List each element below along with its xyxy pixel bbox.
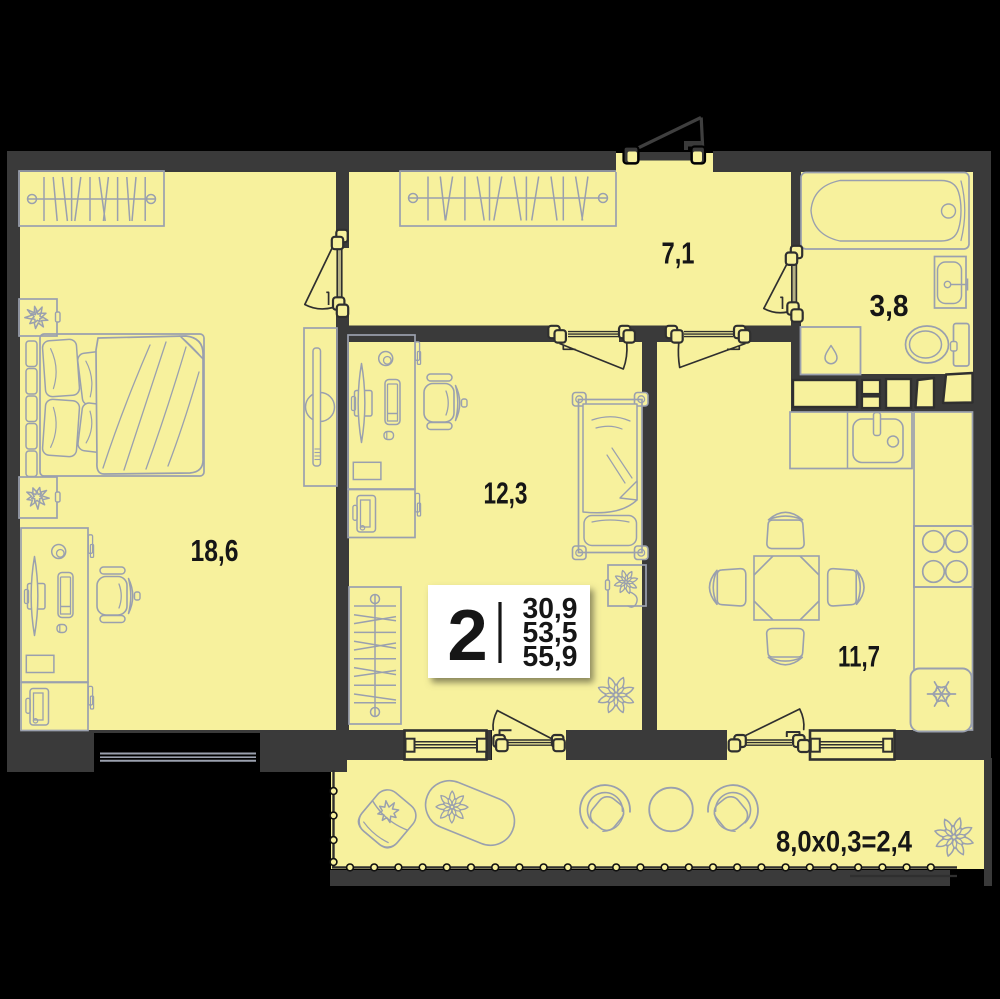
svg-text:8,0x0,3=2,4: 8,0x0,3=2,4 (776, 826, 912, 859)
svg-text:2: 2 (447, 595, 487, 676)
svg-text:11,7: 11,7 (838, 641, 880, 674)
svg-text:55,9: 55,9 (523, 641, 578, 673)
svg-text:12,3: 12,3 (484, 476, 528, 511)
svg-text:3,8: 3,8 (870, 288, 909, 323)
svg-text:18,6: 18,6 (191, 533, 239, 568)
svg-text:7,1: 7,1 (662, 236, 695, 271)
